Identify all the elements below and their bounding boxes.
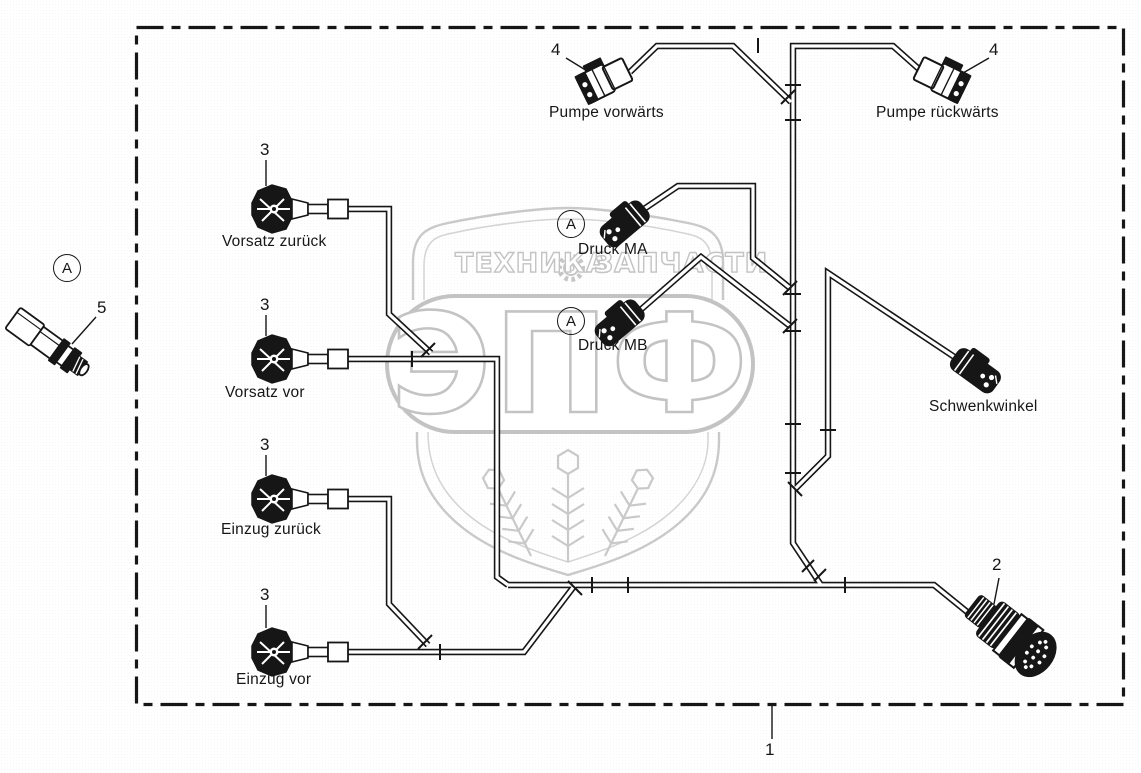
label-druck-ma: Druck MA [578, 241, 648, 259]
label-vorsatz-zurueck: Vorsatz zurück [222, 233, 326, 251]
connector-vorsatz-zurueck [252, 185, 348, 233]
view-marker-a-druck-mb: A [557, 307, 585, 335]
connector-pumpe-rueckwaerts [912, 49, 973, 103]
connector-pumpe-vorwaerts [573, 50, 634, 104]
callout-pressure-sensor: 5 [97, 299, 106, 317]
connector-schwenkwinkel [948, 342, 1005, 395]
wire-bundle [348, 46, 982, 652]
connector-einzug-zurueck [252, 475, 348, 523]
connector-einzug-vor [252, 628, 348, 676]
parts-diagram-page: ТЕХНИКА ЗАПЧАСТИ ЭПФ [0, 0, 1141, 773]
connector-vorsatz-vor [252, 335, 348, 383]
view-marker-a-sensor: A [53, 254, 81, 282]
view-marker-letter: A [566, 217, 576, 232]
label-pumpe-rueckwaerts: Pumpe rückwärts [876, 104, 999, 122]
pressure-sensor-part [5, 307, 94, 382]
label-einzug-zurueck: Einzug zurück [221, 521, 321, 539]
view-marker-letter: A [566, 314, 576, 329]
label-einzug-vor: Einzug vor [236, 671, 311, 689]
callout-pump-plug-left: 4 [551, 41, 560, 59]
label-druck-mb: Druck MB [578, 337, 648, 355]
label-pumpe-vorwaerts: Pumpe vorwärts [549, 104, 664, 122]
callout-sensor-plug-2: 3 [260, 296, 269, 314]
label-vorsatz-vor: Vorsatz vor [225, 384, 305, 402]
view-marker-a-druck-ma: A [557, 210, 585, 238]
callout-pump-plug-right: 4 [989, 41, 998, 59]
label-schwenkwinkel: Schwenkwinkel [929, 398, 1038, 416]
main-harness-connector [958, 586, 1064, 684]
callout-harness: 1 [765, 741, 774, 759]
callout-sensor-plug-3: 3 [260, 436, 269, 454]
view-marker-letter: A [62, 261, 72, 276]
callout-sensor-plug-1: 3 [260, 141, 269, 159]
callout-sensor-plug-4: 3 [260, 586, 269, 604]
callout-main-connector: 2 [992, 556, 1001, 574]
